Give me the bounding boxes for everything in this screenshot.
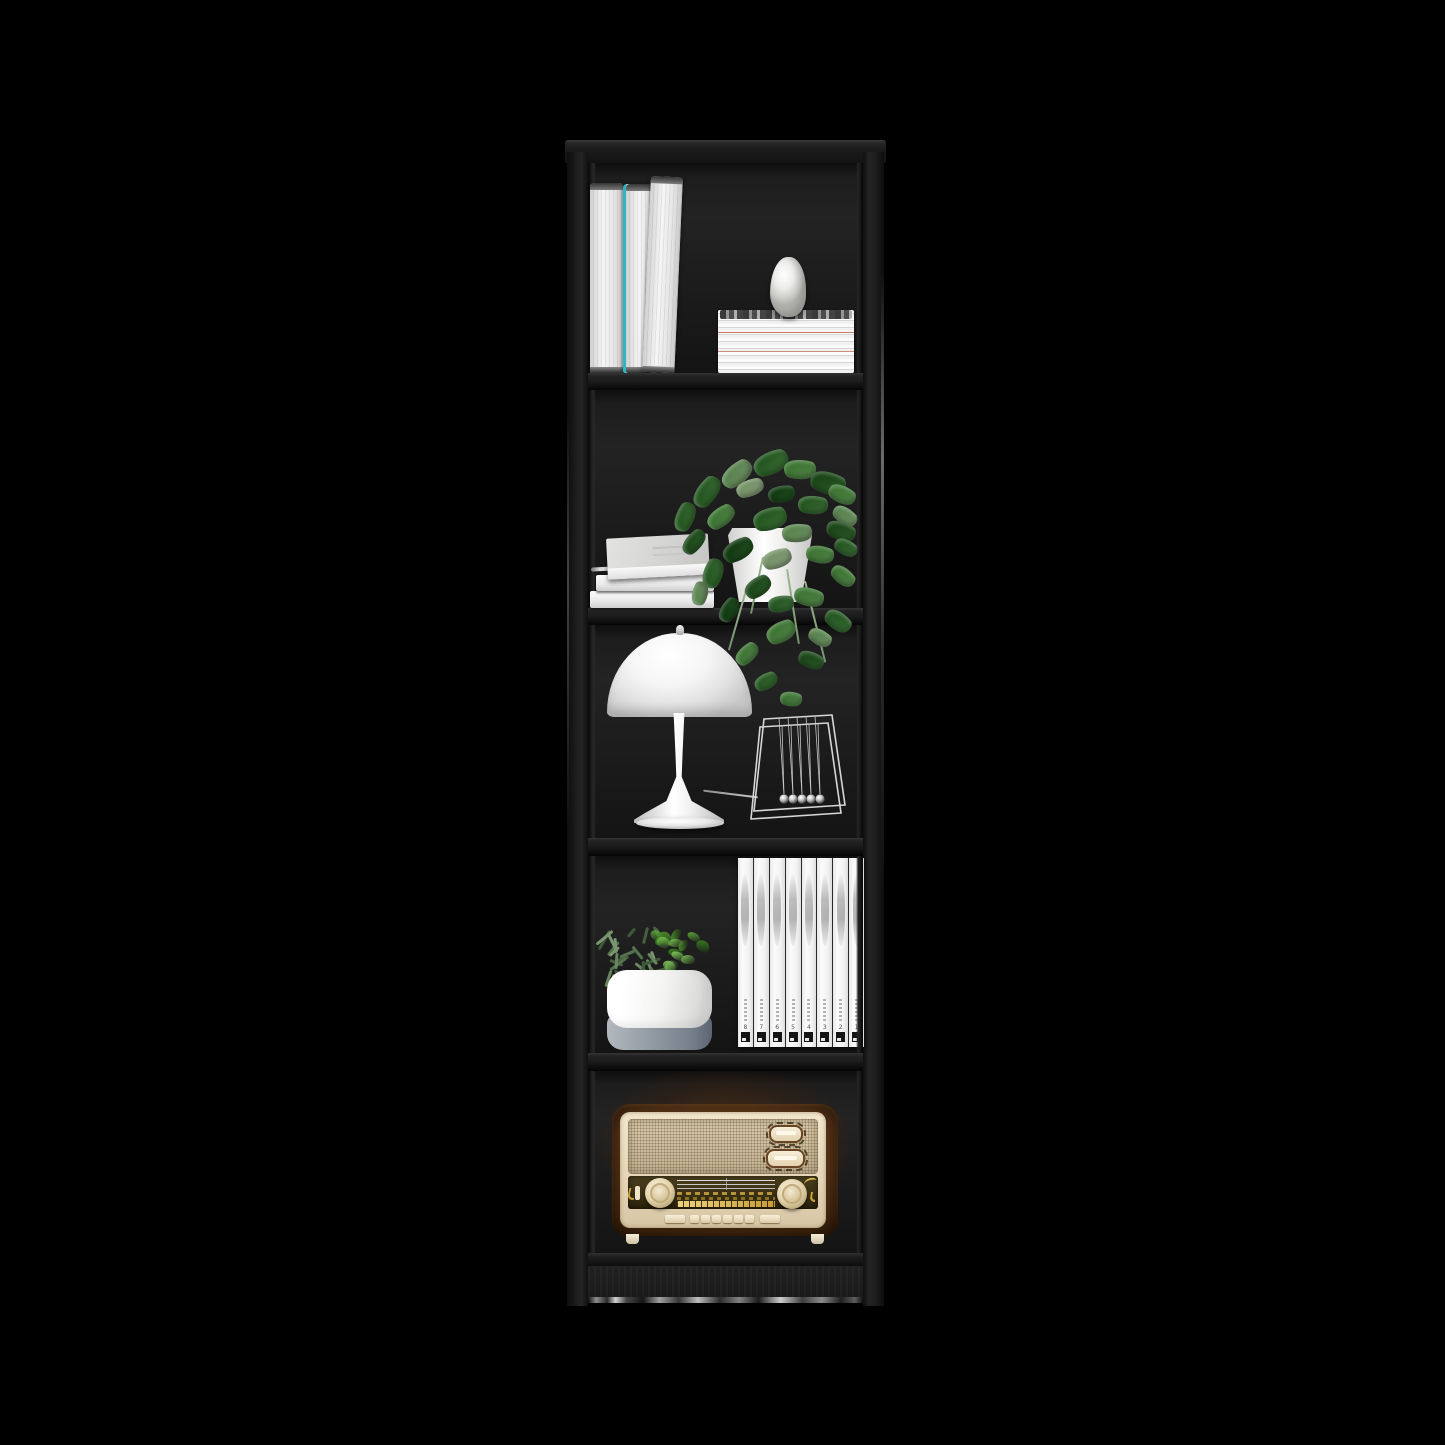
rosemary-sprig [632, 946, 644, 960]
magazine-stack [718, 310, 854, 373]
pothos-leaf [703, 502, 739, 532]
radio-preset-button [701, 1215, 710, 1223]
publisher-logo [852, 1032, 861, 1042]
spine-number: 4 [807, 1024, 811, 1031]
pothos-plant [658, 445, 888, 735]
radio-badge-upper [769, 1125, 803, 1143]
kick-plate-highlight [588, 1297, 863, 1303]
radio-preset-button [745, 1215, 754, 1223]
radio-face [620, 1112, 826, 1228]
dvd-spine: 8 [738, 858, 753, 1047]
radio-dial-scale [677, 1178, 775, 1208]
dvd-spine: 5 [786, 858, 801, 1047]
spine-text [823, 999, 826, 1023]
radio-foot-left [626, 1234, 639, 1244]
spine-number: 5 [791, 1024, 795, 1031]
pothos-leaf [803, 540, 836, 568]
spine-art [757, 874, 765, 946]
radio-preset-button [712, 1215, 721, 1223]
radio-badge-lower [766, 1149, 805, 1168]
spine-number: 7 [759, 1024, 763, 1031]
pothos-leaf [767, 484, 795, 504]
spine-art [741, 874, 749, 946]
bookcase-top-board [565, 140, 886, 163]
spine-number: 6 [775, 1024, 779, 1031]
shelf-board-1 [588, 373, 863, 390]
spine-number: 8 [744, 1024, 748, 1031]
kick-plate [588, 1266, 863, 1300]
pothos-leaf [761, 547, 793, 570]
spine-number: 1 [855, 1024, 859, 1031]
pothos-leaf [764, 618, 798, 646]
pothos-leaf [720, 535, 757, 565]
radio-preset-button [723, 1215, 732, 1223]
publisher-logo [789, 1032, 798, 1042]
dvd-spine: 1 [849, 858, 864, 1047]
product-photo: 8 7 6 5 4 3 2 1 [0, 0, 1445, 1445]
spine-art [773, 874, 781, 946]
spine-text [855, 999, 858, 1023]
radio-foot-right [811, 1234, 824, 1244]
spine-art [805, 874, 813, 946]
radio-preset-button [734, 1215, 743, 1223]
shelf-compartment-4: 8 7 6 5 4 3 2 1 [588, 856, 863, 1053]
standing-book-1 [590, 183, 623, 373]
edge-sheen [567, 412, 569, 832]
radio-preset-button [665, 1215, 685, 1223]
rosemary-sprig [613, 938, 616, 953]
publisher-logo [820, 1032, 829, 1042]
spine-text [839, 999, 842, 1023]
spine-text [760, 999, 763, 1023]
spine-art [789, 874, 797, 946]
rosemary-sprig [627, 927, 636, 937]
stone-figurine [770, 257, 806, 317]
shelf-board-3 [588, 838, 863, 856]
dvd-spine: 6 [770, 858, 785, 1047]
publisher-logo [804, 1032, 813, 1042]
pothos-leaf [767, 594, 795, 615]
spine-text [792, 999, 795, 1023]
spine-text [807, 999, 810, 1023]
lamp-base-foot [636, 817, 724, 829]
spine-text [744, 999, 747, 1023]
publisher-logo [773, 1032, 782, 1042]
spine-art [853, 874, 861, 946]
bookcase-bottom-board [588, 1253, 863, 1266]
spine-number: 2 [839, 1024, 843, 1031]
pothos-leaf [780, 521, 813, 546]
shelf-board-4 [588, 1053, 863, 1071]
radio-preset-button [690, 1215, 699, 1223]
pothos-leaf [741, 573, 774, 601]
publisher-logo [836, 1032, 845, 1042]
publisher-logo [757, 1032, 766, 1042]
rosemary-sprig [614, 953, 618, 969]
vintage-radio [612, 1104, 838, 1236]
pothos-leaf [778, 687, 804, 710]
planter-body [607, 970, 712, 1028]
bookcase: 8 7 6 5 4 3 2 1 [567, 140, 884, 1306]
radio-tuning-knob-left [645, 1178, 675, 1208]
shelf-compartment-5 [588, 1071, 863, 1253]
radio-tuning-knob-right [777, 1179, 807, 1209]
pothos-leaf [752, 670, 779, 692]
dvd-spine: 7 [754, 858, 769, 1047]
shelf-compartment-1 [588, 163, 863, 373]
dvd-spine: 2 [833, 858, 848, 1047]
spine-art [821, 874, 829, 946]
shelf-compartment-2 [588, 390, 863, 608]
pothos-leaf [828, 560, 858, 592]
radio-preset-button [760, 1215, 780, 1223]
pothos-leaf [731, 640, 763, 669]
dvd-case-row: 8 7 6 5 4 3 2 1 [738, 858, 864, 1047]
publisher-logo [741, 1032, 750, 1042]
dvd-spine: 4 [802, 858, 817, 1047]
dvd-spine: 3 [817, 858, 832, 1047]
spine-number: 3 [823, 1024, 827, 1031]
pothos-leaf [796, 491, 830, 518]
bookcase-left-panel [567, 152, 588, 1306]
spine-art [837, 874, 845, 946]
basil-leaf [695, 938, 713, 956]
spine-text [776, 999, 779, 1023]
pothos-leaf [791, 581, 827, 612]
